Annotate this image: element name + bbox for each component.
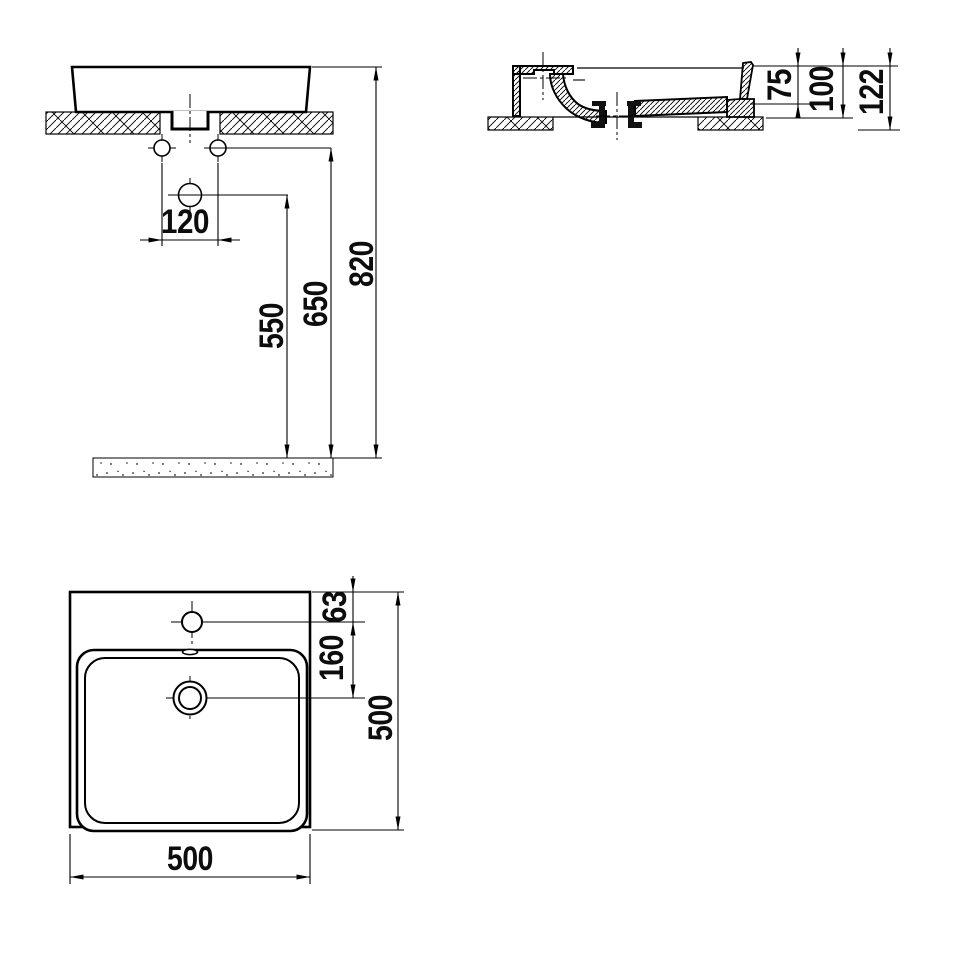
- dim-label-160: 160: [313, 635, 351, 681]
- technical-drawing-page: 120 550 650 820: [0, 0, 972, 956]
- counter-cut-section: [488, 117, 763, 130]
- overflow-slot: [183, 649, 198, 654]
- floor-strip: [93, 458, 382, 477]
- dim-label-63: 63: [316, 591, 354, 623]
- front-elevation-view: 120 550 650 820: [46, 67, 382, 477]
- dim-label-500-depth: 500: [362, 695, 400, 741]
- dim-label-550: 550: [253, 303, 291, 349]
- dim-basin-depth: 75: [761, 48, 801, 118]
- dim-hole-spacing: 120: [140, 163, 240, 246]
- plan-view: 63 160 500 500: [70, 576, 404, 884]
- dim-tap-offset: 63 160: [313, 576, 356, 698]
- dim-label-120: 120: [161, 203, 209, 241]
- dim-label-75: 75: [761, 69, 799, 101]
- dim-depth: 500: [362, 592, 401, 830]
- dim-label-100: 100: [803, 66, 841, 112]
- side-section-view: 75 100 122: [488, 48, 900, 140]
- dim-label-820: 820: [343, 241, 381, 287]
- basin-body-front: [72, 67, 310, 112]
- dim-drain-height: 550: [253, 195, 291, 458]
- dim-label-650: 650: [297, 281, 335, 327]
- dim-holes-height: 650: [297, 148, 335, 458]
- dim-label-122: 122: [853, 69, 891, 115]
- washbasin-drawing-svg: 120 550 650 820: [0, 0, 972, 956]
- dim-width: 500: [70, 834, 310, 884]
- dim-label-500-width: 500: [167, 840, 213, 878]
- dim-overall-height: 122: [853, 48, 893, 130]
- dim-body-height: 100: [803, 48, 846, 118]
